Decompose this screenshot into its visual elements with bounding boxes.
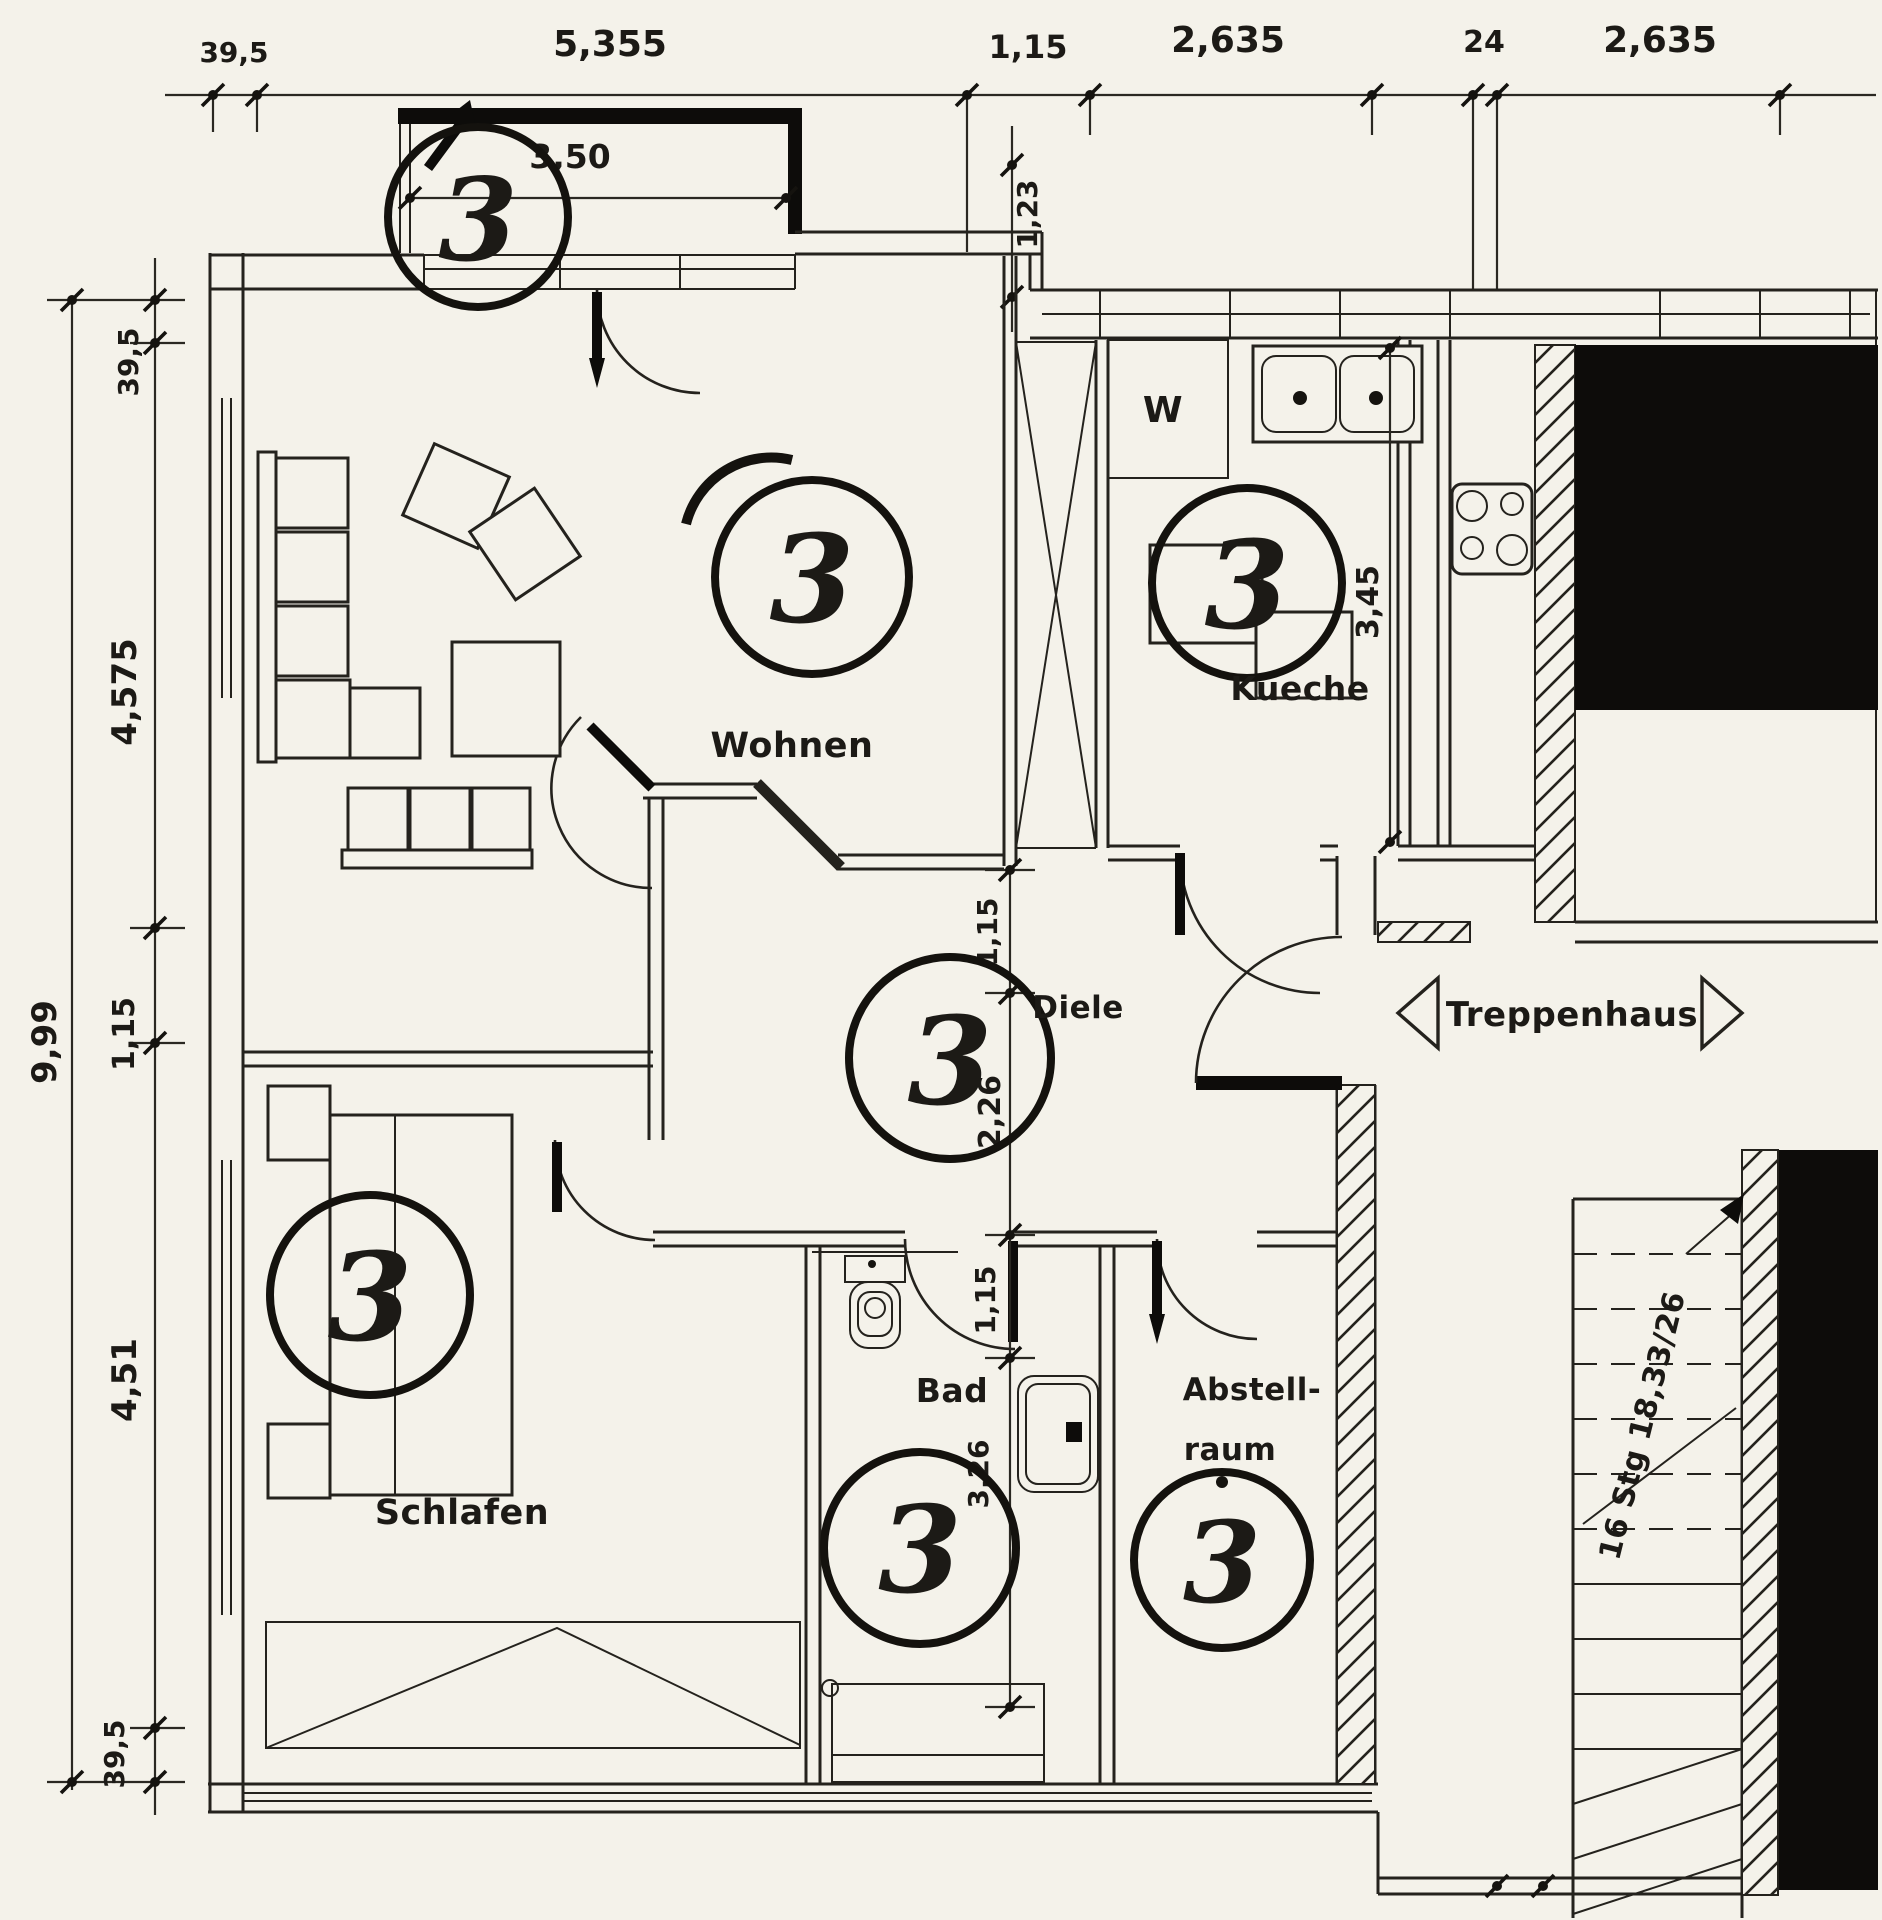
- label-washer: W: [1143, 390, 1183, 431]
- label-kueche: Kueche: [1230, 669, 1369, 708]
- sink-counter: [1253, 346, 1422, 442]
- dim-top-24: 24: [1463, 25, 1505, 60]
- label-wohnen: Wohnen: [711, 726, 874, 766]
- nightstand-2: [268, 1424, 330, 1498]
- label-schlafen: Schlafen: [375, 1493, 549, 1533]
- dim-left-39-5-top: 39,5: [112, 327, 145, 396]
- unit-number-abstell: 3: [1183, 1498, 1261, 1629]
- label-abstell-1: Abstell-: [1183, 1372, 1322, 1408]
- dim-diele-1-15b: 1,15: [969, 1265, 1002, 1334]
- hatched-wall-entrance: [1337, 1085, 1375, 1784]
- sofa2-back: [342, 850, 532, 868]
- dim-left-4-575: 4,575: [105, 638, 145, 746]
- black-core-right: [1778, 1150, 1878, 1890]
- bathtub-faucet-icon: [1066, 1422, 1082, 1442]
- floor-plan-page: 39,5 5,355 1,15 2,635 24 2,635 39,5 4,57…: [0, 0, 1882, 1920]
- dim-top-2-635b: 2,635: [1603, 20, 1717, 61]
- unit-number-schlafen: 3: [328, 1225, 413, 1369]
- label-diele: Diele: [1032, 990, 1124, 1026]
- dim-left-39-5-bottom: 39,5: [98, 1719, 131, 1788]
- label-treppenhaus: Treppenhaus: [1446, 995, 1698, 1035]
- entrance-door-leaf: [1196, 1076, 1342, 1090]
- balcony-wall-right: [788, 108, 802, 234]
- dim-3-45: 3,45: [1351, 565, 1386, 639]
- unit-number-bad: 3: [878, 1480, 962, 1621]
- label-bad: Bad: [916, 1371, 989, 1410]
- dim-left-4-51: 4,51: [105, 1338, 145, 1422]
- dim-top-5-355: 5,355: [553, 24, 667, 65]
- unit-number-wohnen: 3: [770, 507, 855, 651]
- dim-left-1-15: 1,15: [107, 997, 142, 1071]
- label-abstell-2: raum: [1184, 1432, 1277, 1468]
- nightstand-1: [268, 1086, 330, 1160]
- black-core-upper: [1575, 345, 1878, 710]
- dim-top-1-15: 1,15: [989, 28, 1068, 66]
- dim-left-total-9-99: 9,99: [25, 1000, 65, 1084]
- floor-plan-drawing: 39,5 5,355 1,15 2,635 24 2,635 39,5 4,57…: [0, 0, 1882, 1920]
- sofa-back: [258, 452, 276, 762]
- dim-diele-1-15a: 1,15: [971, 897, 1004, 966]
- dim-1-23: 1,23: [1011, 179, 1044, 248]
- unit-number-balcony: 3: [438, 153, 517, 287]
- hatched-wall-kueche-right: [1535, 345, 1575, 922]
- dim-top-2-635a: 2,635: [1171, 20, 1285, 61]
- hatched-wall-landing-stub: [1378, 922, 1470, 942]
- unit-number-kueche: 3: [1205, 513, 1290, 657]
- coffee-table: [452, 642, 560, 756]
- hatched-wall-stairs-right: [1742, 1150, 1778, 1895]
- unit-number-diele: 3: [908, 989, 993, 1133]
- dim-top-39-5: 39,5: [199, 36, 268, 69]
